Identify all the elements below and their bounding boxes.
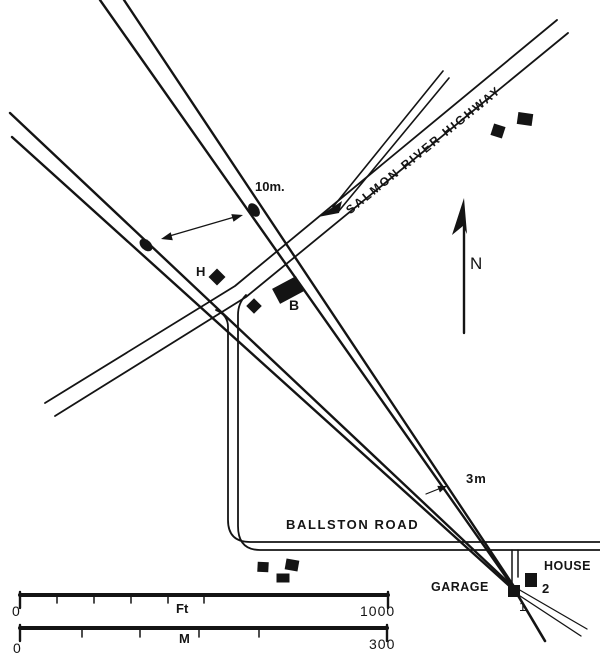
building-garage — [508, 585, 520, 597]
connector-ballston-inner-line — [238, 295, 600, 550]
map-canvas: SALMON RIVER HIGHWAY BALLSTON ROAD 10m. … — [0, 0, 600, 668]
meters-scale-unit-label: M — [179, 631, 190, 646]
north-arrow-head-icon — [452, 198, 467, 235]
building-highway-2 — [517, 112, 534, 126]
feet-scale-unit-label: Ft — [176, 601, 188, 616]
building-cluster-2 — [285, 558, 300, 571]
meters-scale-max-label: 300 — [369, 636, 395, 652]
salmon-river-highway-road — [45, 20, 568, 416]
building-cluster-3 — [277, 574, 290, 583]
measurement-arrow-10m — [137, 201, 262, 254]
building-h-marker — [209, 269, 226, 286]
feet-scale-zero-label: 0 — [12, 603, 20, 619]
arrow-10m-shaft — [166, 216, 238, 237]
north-label: N — [470, 254, 482, 274]
meters-scale-minor-ticks — [82, 630, 259, 637]
highway-north-line — [45, 20, 557, 403]
house-label: HOUSE — [544, 559, 591, 573]
spur-arrowhead-icon — [318, 201, 342, 217]
point-1-label: 1 — [519, 599, 526, 614]
lineament-a-west-line — [100, 0, 513, 587]
scale-bar-feet — [20, 592, 388, 608]
building-house — [525, 573, 537, 587]
building-b-label: B — [289, 297, 299, 313]
building-small-diamond — [246, 298, 262, 314]
building-cluster-1 — [257, 562, 269, 573]
point-2-label: 2 — [542, 581, 549, 596]
driveway — [512, 550, 518, 587]
north-arrow — [452, 198, 467, 333]
arrow-10m-head-east-icon — [231, 214, 243, 222]
map-linework — [0, 0, 600, 668]
ballston-road-label: BALLSTON ROAD — [286, 517, 419, 532]
meters-scale-zero-label: 0 — [13, 640, 21, 656]
building-highway-1 — [490, 123, 505, 138]
garage-label: GARAGE — [431, 580, 489, 594]
connector-and-ballston-road — [216, 295, 600, 550]
offset-10m-label: 10m. — [255, 179, 285, 194]
building-b-barn — [272, 276, 304, 304]
feet-scale-max-label: 1000 — [360, 603, 395, 619]
offset-3m-label: 3m — [466, 471, 487, 486]
building-h-label: H — [196, 264, 205, 279]
arrow-10m-head-west-icon — [161, 232, 173, 240]
southeast-trace-line-2 — [518, 589, 587, 629]
lineament-b-south-line — [12, 137, 516, 592]
lineament-a-east-line — [124, 0, 517, 591]
scale-bar-meters — [20, 625, 387, 641]
